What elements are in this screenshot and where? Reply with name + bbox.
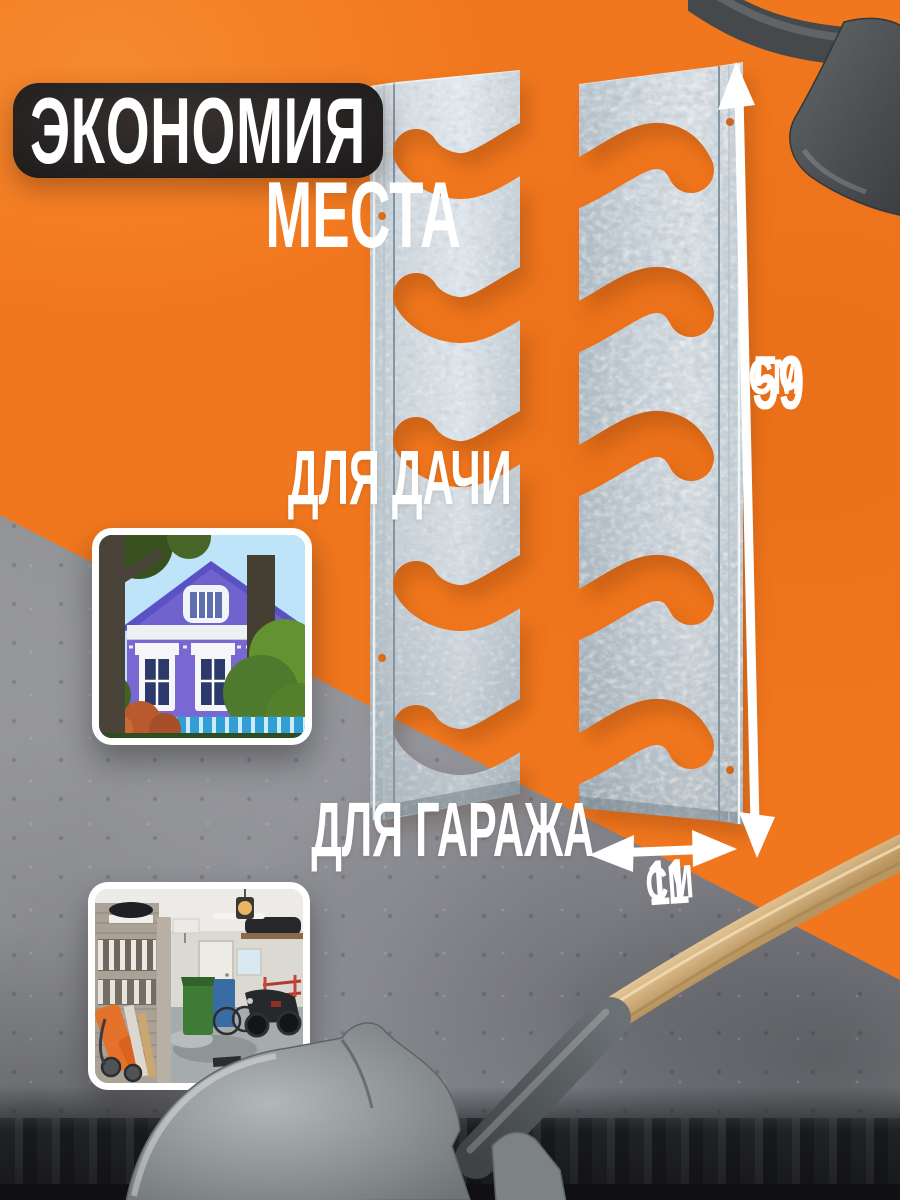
wood-handle — [604, 850, 900, 1020]
shovel-socket — [476, 1018, 610, 1158]
shovel-bottom — [0, 0, 900, 1200]
product-card: ЭКОНОМИЯ МЕСТА ДЛЯ ДАЧИ — [0, 0, 900, 1200]
